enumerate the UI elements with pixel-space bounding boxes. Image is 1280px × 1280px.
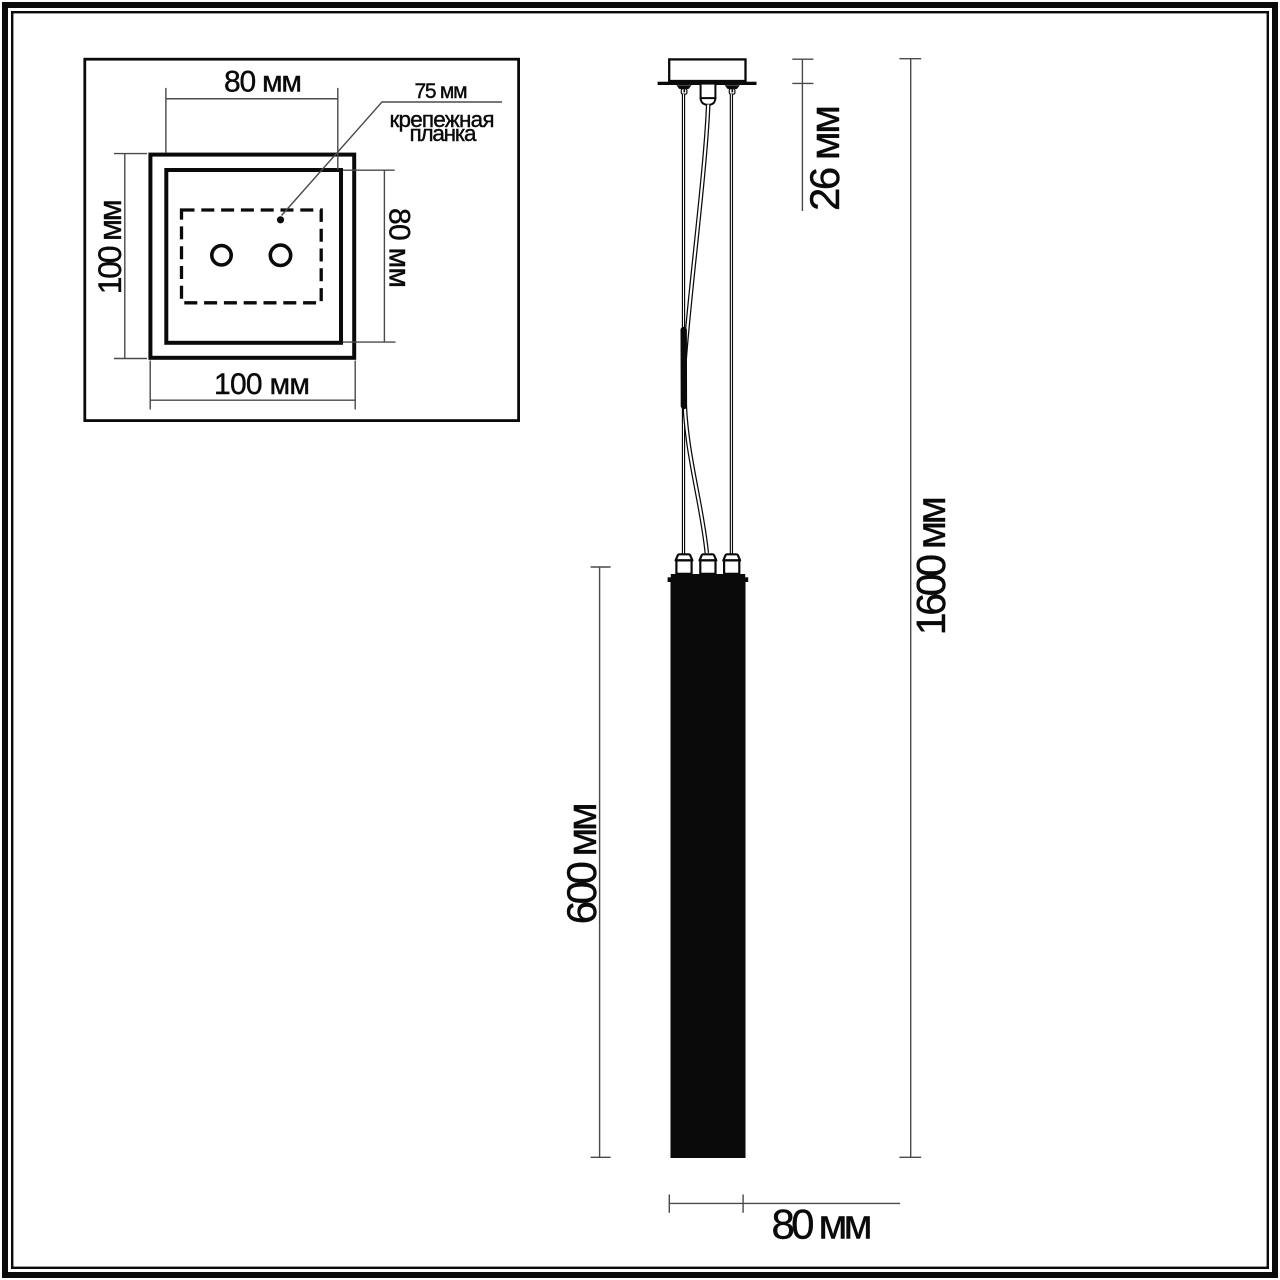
svg-text:75 мм: 75 мм — [415, 80, 468, 103]
svg-text:80 мм: 80 мм — [224, 65, 302, 98]
svg-text:1600 мм: 1600 мм — [908, 496, 954, 635]
svg-text:100 мм: 100 мм — [214, 368, 310, 401]
svg-text:80 мм: 80 мм — [772, 1201, 873, 1248]
svg-text:планка: планка — [410, 121, 477, 146]
svg-text:80 мм: 80 мм — [383, 208, 416, 288]
svg-text:100 мм: 100 мм — [92, 199, 128, 294]
svg-text:600 мм: 600 мм — [558, 802, 605, 924]
svg-text:26 мм: 26 мм — [801, 105, 848, 211]
